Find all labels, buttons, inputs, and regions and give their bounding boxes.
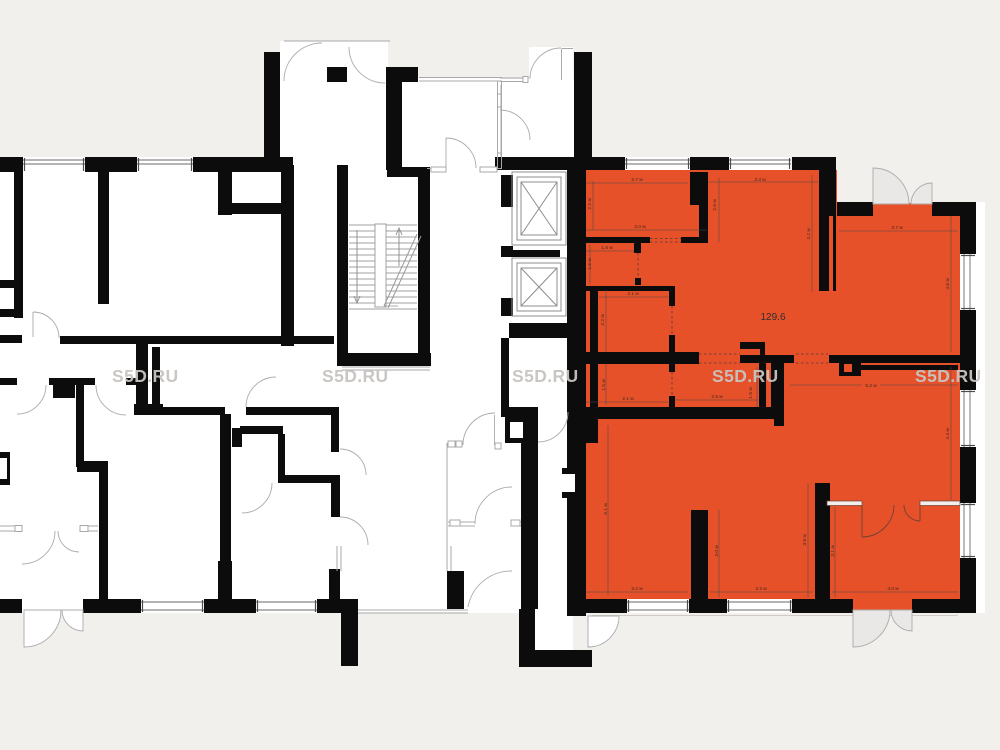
svg-text:1.5 м: 1.5 м	[748, 387, 754, 398]
svg-text:5.2 м: 5.2 м	[865, 383, 876, 389]
svg-text:4.2 м: 4.2 м	[806, 228, 812, 239]
svg-text:3.0 м: 3.0 м	[714, 545, 720, 556]
svg-text:4.0 м: 4.0 м	[887, 586, 898, 592]
svg-text:S5D.RU: S5D.RU	[712, 366, 779, 386]
svg-text:3.7 м: 3.7 м	[631, 177, 642, 183]
svg-text:S5D.RU: S5D.RU	[322, 366, 389, 386]
svg-text:2.5 м: 2.5 м	[711, 394, 722, 400]
svg-text:S5D.RU: S5D.RU	[112, 366, 179, 386]
svg-text:129.6: 129.6	[760, 312, 785, 323]
svg-text:3.2 м: 3.2 м	[631, 586, 642, 592]
svg-text:3.0 м: 3.0 м	[634, 224, 645, 230]
svg-text:2.6 м: 2.6 м	[712, 199, 718, 210]
svg-text:1.6 м: 1.6 м	[587, 258, 593, 269]
svg-text:3.3 м: 3.3 м	[754, 177, 765, 183]
svg-text:2.1 м: 2.1 м	[622, 396, 633, 402]
svg-text:3.9 м: 3.9 м	[802, 534, 808, 545]
svg-text:2.2 м: 2.2 м	[587, 198, 593, 209]
svg-text:4.6 м: 4.6 м	[945, 278, 951, 289]
svg-text:3.1 м: 3.1 м	[830, 545, 836, 556]
svg-text:1.5 м: 1.5 м	[601, 379, 607, 390]
svg-text:6.1 м: 6.1 м	[603, 503, 609, 514]
svg-text:2.1 м: 2.1 м	[627, 291, 638, 297]
svg-text:3.2 м: 3.2 м	[755, 586, 766, 592]
svg-text:2.2 м: 2.2 м	[600, 314, 606, 325]
svg-text:1.5 м: 1.5 м	[601, 245, 612, 251]
svg-text:3.7 м: 3.7 м	[891, 225, 902, 231]
svg-text:S5D.RU: S5D.RU	[512, 366, 579, 386]
svg-text:S5D.RU: S5D.RU	[915, 366, 982, 386]
svg-text:4.4 м: 4.4 м	[945, 428, 951, 439]
